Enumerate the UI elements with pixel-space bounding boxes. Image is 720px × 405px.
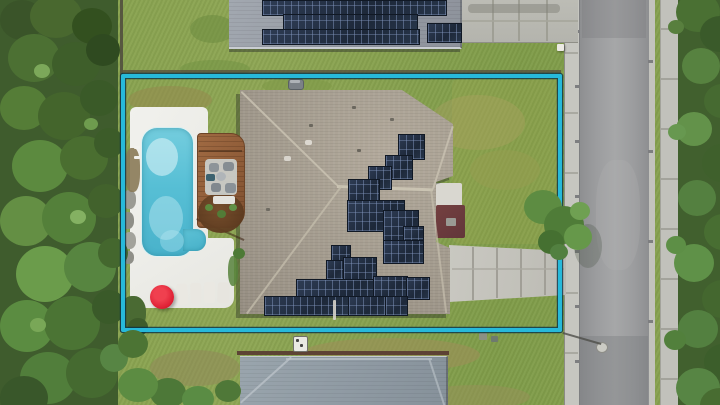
neighbor-top-roof: [229, 0, 462, 49]
property-boundary-overlay: [121, 74, 562, 332]
aerial-photo: [0, 0, 720, 405]
tree-strip-right: [678, 0, 720, 405]
street-gutter: [564, 0, 580, 405]
street-curb-right: [649, 0, 655, 405]
sidewalk: [660, 0, 680, 405]
tree-strip-left: [0, 0, 118, 405]
neighbor-bottom-roof: [240, 356, 448, 405]
neighbor-driveway: [459, 0, 578, 43]
street: [579, 0, 651, 405]
